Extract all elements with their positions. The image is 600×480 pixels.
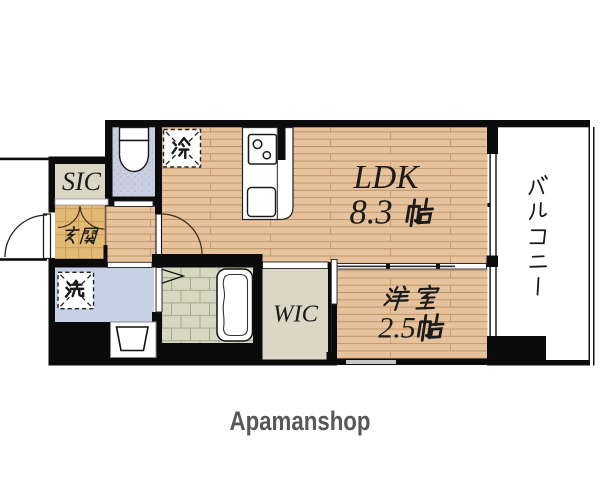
svg-text:2.5: 2.5 <box>378 312 416 345</box>
svg-text:SIC: SIC <box>62 167 102 196</box>
svg-text:LDK: LDK <box>352 159 420 196</box>
svg-text:8.3: 8.3 <box>349 194 392 232</box>
svg-text:Apamanshop: Apamanshop <box>230 406 371 436</box>
svg-text:WIC: WIC <box>273 301 319 328</box>
